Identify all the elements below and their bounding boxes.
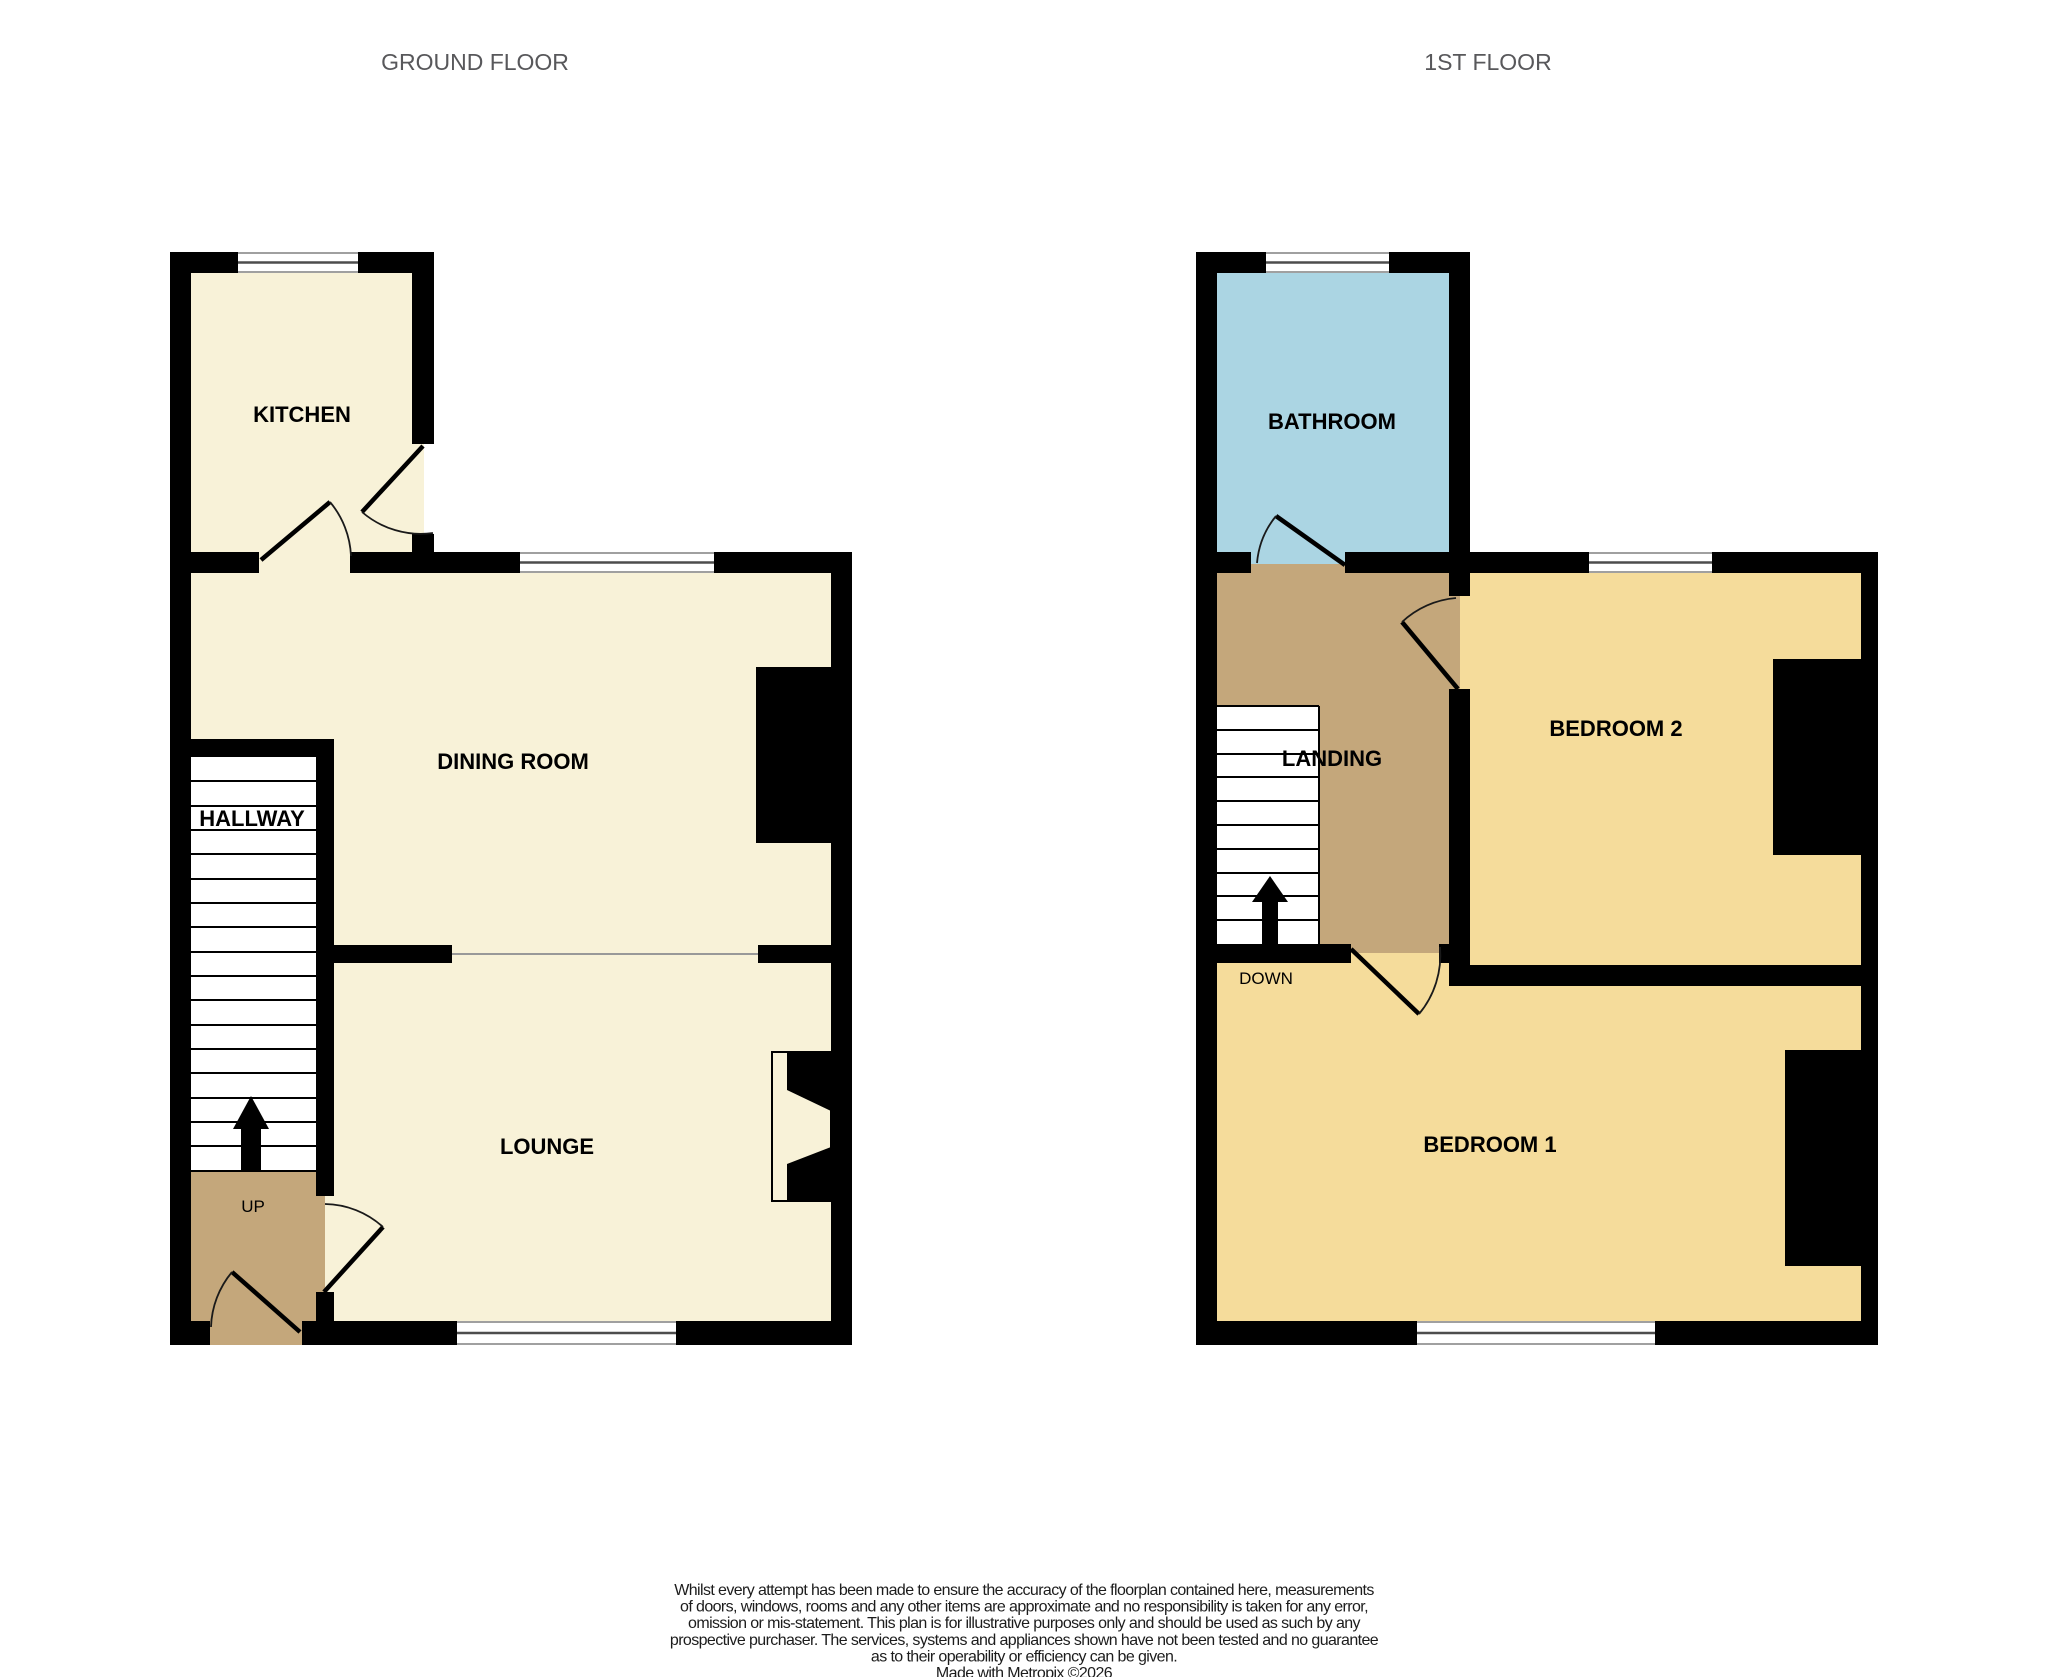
svg-text:DINING ROOM: DINING ROOM — [437, 749, 589, 774]
svg-text:UP: UP — [241, 1197, 265, 1216]
svg-text:BEDROOM 2: BEDROOM 2 — [1549, 716, 1682, 741]
svg-text:Made with Metropix ©2026: Made with Metropix ©2026 — [936, 1665, 1113, 1677]
svg-text:GROUND FLOOR: GROUND FLOOR — [381, 49, 569, 75]
svg-text:Whilst every attempt has been: Whilst every attempt has been made to en… — [674, 1582, 1374, 1599]
svg-text:prospective purchaser. The ser: prospective purchaser. The services, sys… — [670, 1632, 1379, 1649]
svg-text:LOUNGE: LOUNGE — [500, 1134, 594, 1159]
svg-text:of doors, windows, rooms and a: of doors, windows, rooms and any other i… — [680, 1599, 1368, 1616]
svg-text:DOWN: DOWN — [1239, 969, 1293, 988]
svg-text:omission or mis-statement. Thi: omission or mis-statement. This plan is … — [688, 1615, 1360, 1632]
svg-text:1ST FLOOR: 1ST FLOOR — [1424, 49, 1551, 75]
svg-text:HALLWAY: HALLWAY — [199, 806, 305, 831]
svg-text:LANDING: LANDING — [1282, 746, 1382, 771]
svg-text:KITCHEN: KITCHEN — [253, 402, 351, 427]
svg-text:BATHROOM: BATHROOM — [1268, 409, 1396, 434]
svg-text:BEDROOM 1: BEDROOM 1 — [1423, 1132, 1556, 1157]
svg-text:as to their operability or eff: as to their operability or efficiency ca… — [871, 1648, 1177, 1665]
